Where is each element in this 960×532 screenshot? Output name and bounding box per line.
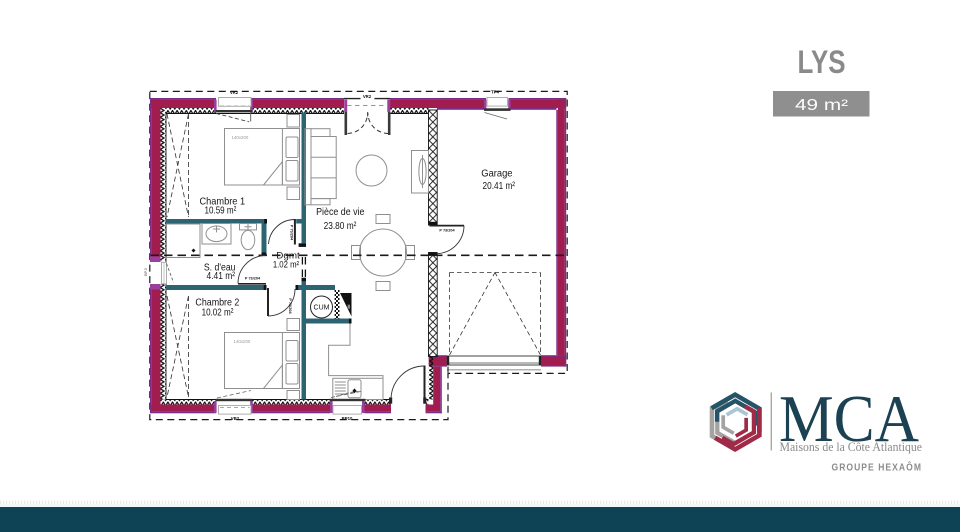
svg-text:VB2: VB2 [231,416,240,421]
svg-text:TP4: TP4 [491,89,499,94]
svg-text:49 m²: 49 m² [795,97,848,114]
svg-text:10.02 m²: 10.02 m² [202,307,234,319]
svg-text:Maisons de la Côte Atlantique: Maisons de la Côte Atlantique [780,440,923,454]
svg-text:LYS: LYS [798,44,846,80]
svg-text:BP10: BP10 [342,416,353,421]
svg-text:VR2: VR2 [230,90,239,95]
svg-text:140x200: 140x200 [232,135,249,140]
svg-text:P 73/204: P 73/204 [288,298,292,314]
svg-text:140x200: 140x200 [234,339,251,344]
svg-text:VR2: VR2 [363,94,372,99]
svg-text:BP.0: BP.0 [144,268,148,276]
svg-text:20.41 m²: 20.41 m² [483,181,516,192]
svg-text:P 73/204: P 73/204 [245,276,261,280]
svg-text:Pièce de vie: Pièce de vie [316,206,364,218]
svg-text:4.41 m²: 4.41 m² [207,271,236,282]
svg-text:23.80 m²: 23.80 m² [324,220,357,232]
svg-text:1.02 m²: 1.02 m² [273,260,299,271]
svg-text:CUM: CUM [314,305,330,312]
svg-text:Garage: Garage [481,169,513,180]
svg-text:P 73/204: P 73/204 [290,225,294,241]
svg-text:P 73/204: P 73/204 [439,229,455,233]
svg-text:10.59 m²: 10.59 m² [205,204,237,216]
svg-text:RF: RF [347,305,351,311]
svg-text:GROUPE HEXAÔM: GROUPE HEXAÔM [832,461,923,473]
